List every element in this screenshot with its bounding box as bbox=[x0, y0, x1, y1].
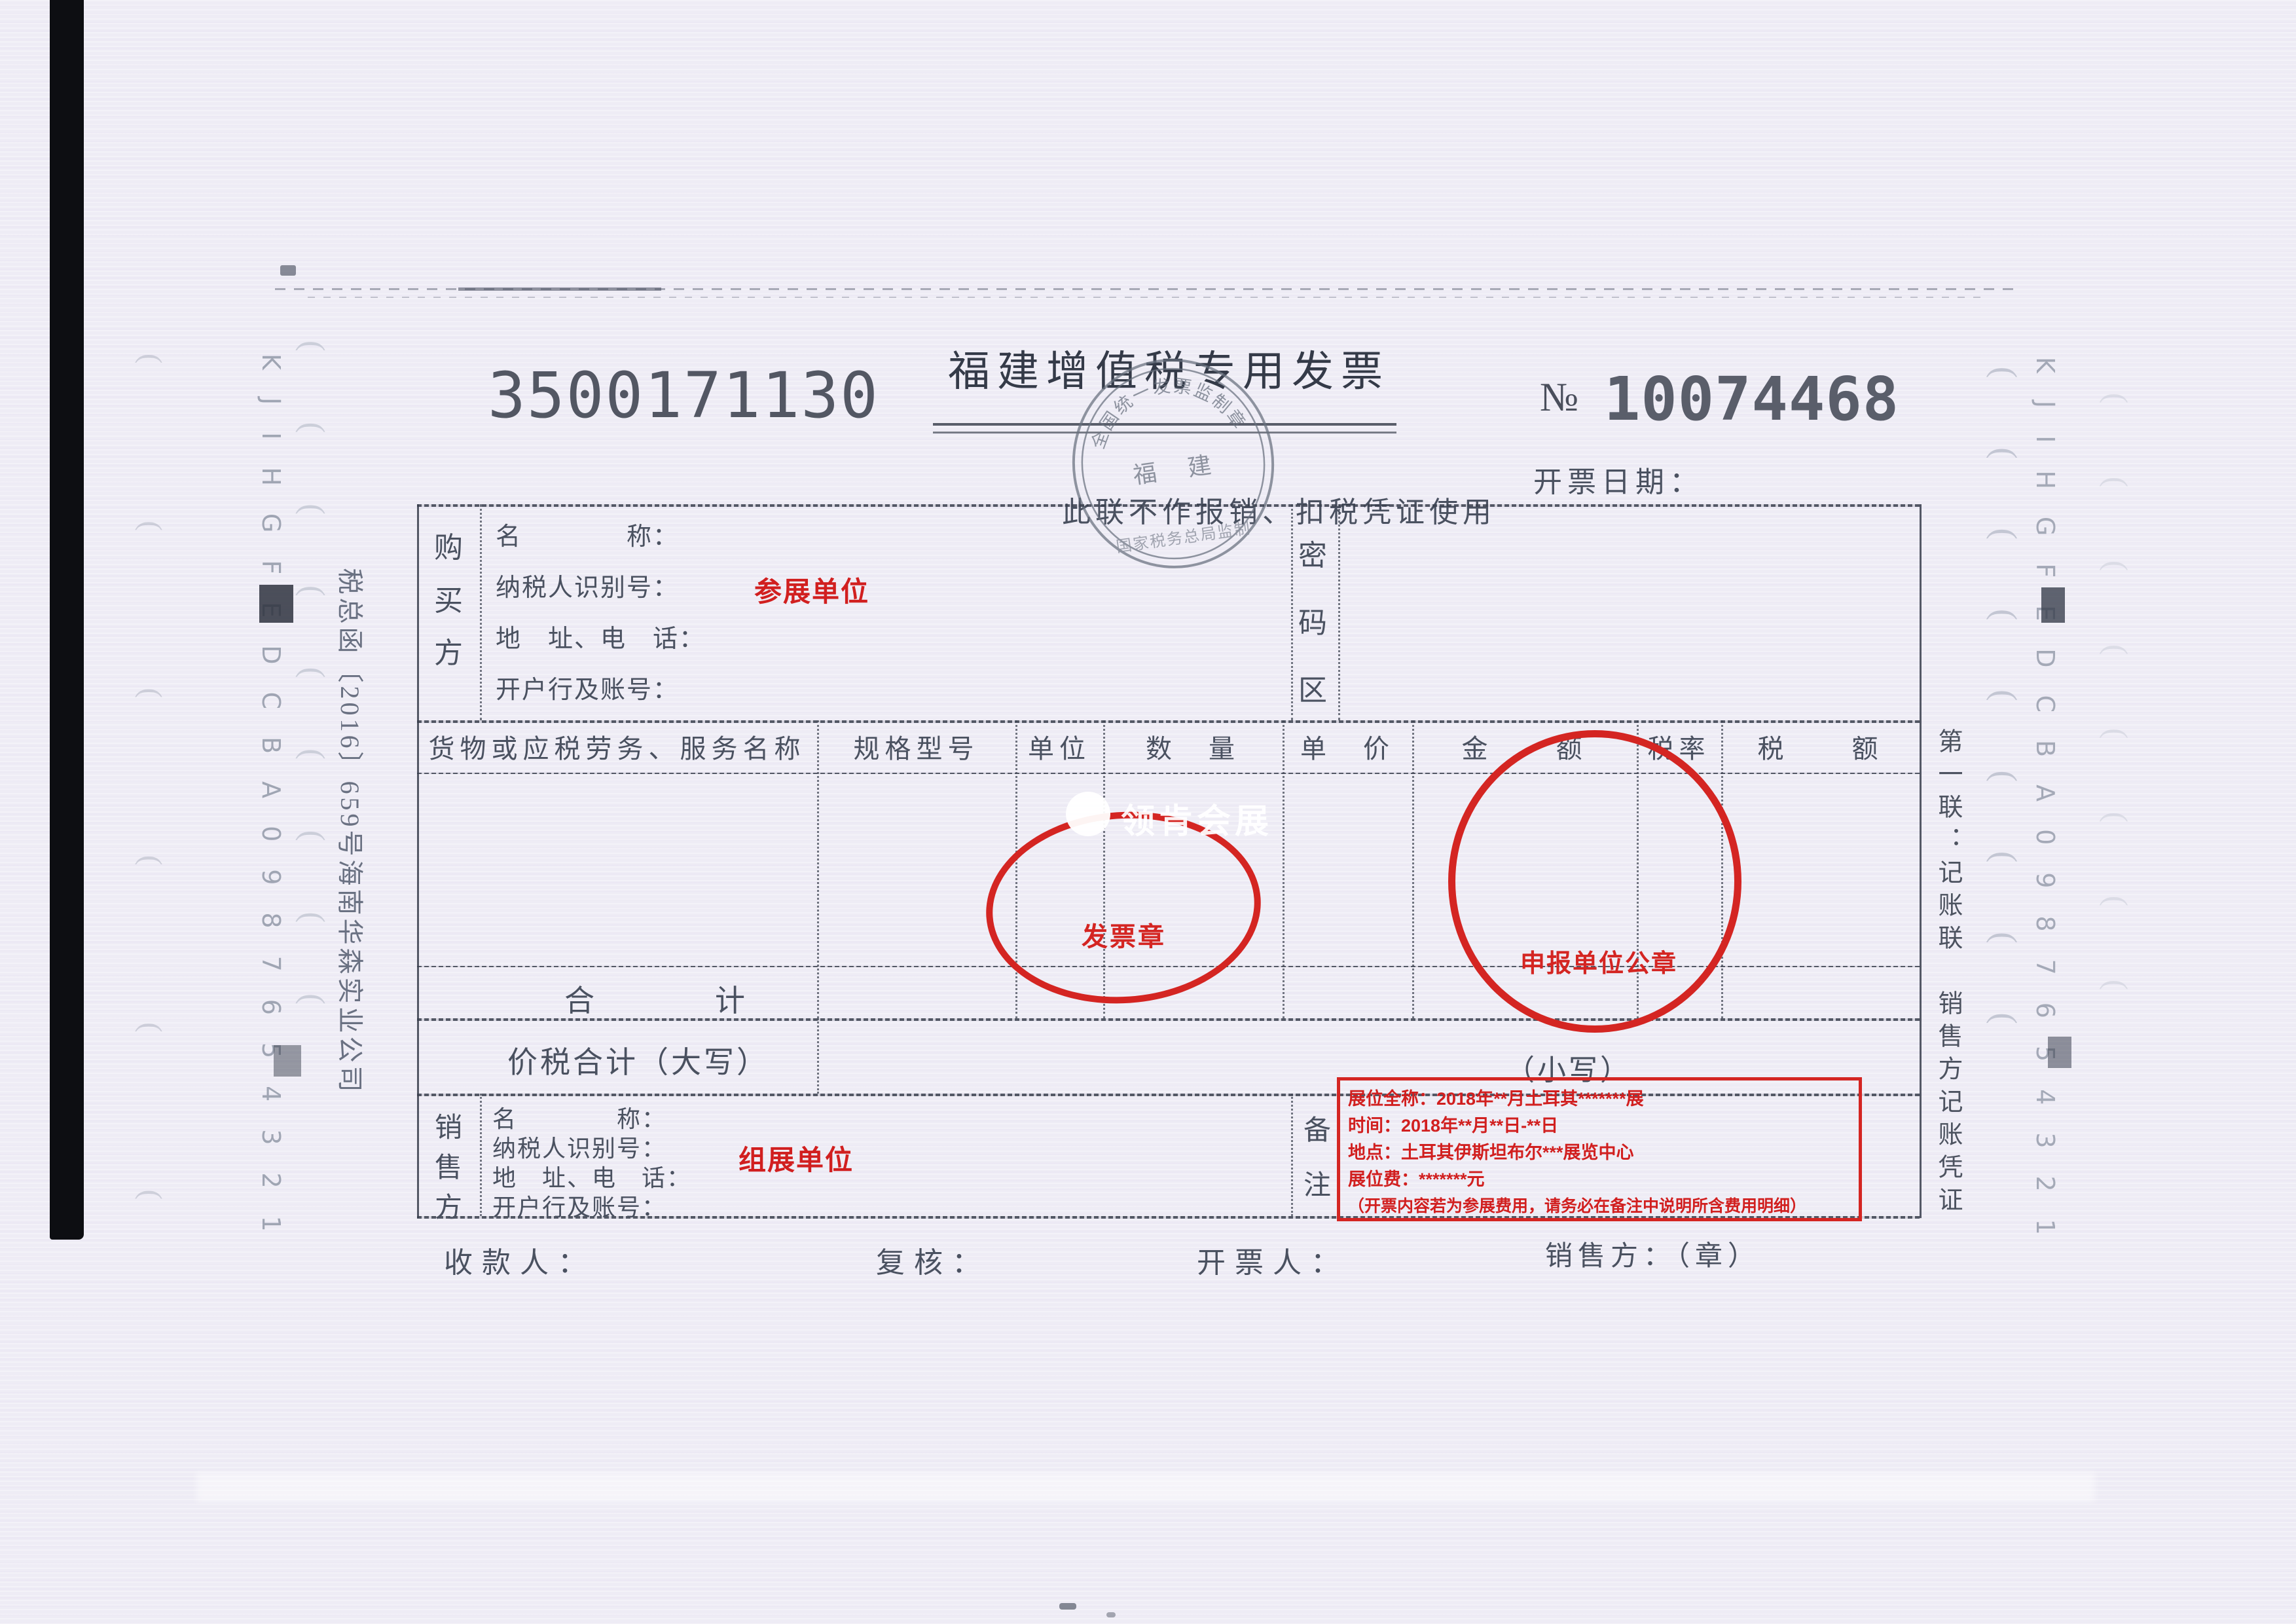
left-scale-blob-2 bbox=[274, 1045, 301, 1077]
invoice-scan-page: (((((( KJIHGFEDCBA0987654321 ((((((((( K… bbox=[0, 0, 2296, 1624]
scan-black-bar bbox=[50, 0, 84, 1240]
declaration-seal-circle bbox=[1448, 730, 1741, 1033]
table-border-left bbox=[417, 504, 419, 1218]
watermark-text: 领肯会展 bbox=[1121, 794, 1273, 843]
buyer-party-char: 方 bbox=[434, 629, 463, 671]
seller-bank-field: 开户行及账号： bbox=[492, 1189, 666, 1223]
scan-speck-1 bbox=[1059, 1603, 1076, 1610]
password-label-char: 码 bbox=[1298, 599, 1327, 641]
right-edge-scale: KJIHGFEDCBA0987654321 bbox=[2031, 357, 2060, 1274]
buyer-taxid-field: 纳税人识别号： bbox=[496, 567, 679, 603]
footer-seller-seal-label: 销售方：（章） bbox=[1545, 1234, 1760, 1274]
right-scale-blob-2 bbox=[2048, 1037, 2071, 1068]
remarks-label-char: 注 bbox=[1303, 1163, 1331, 1203]
buyer-name-field: 名 称： bbox=[496, 516, 679, 552]
col-header-goods: 货物或应税劳务、服务名称 bbox=[417, 724, 817, 769]
table-border-right bbox=[1920, 504, 1922, 1218]
buyer-address-field: 地 址、电 话： bbox=[496, 618, 705, 654]
line-buyer-bottom bbox=[417, 720, 1922, 723]
scan-mark-top-left bbox=[280, 265, 296, 276]
remarks-label-char: 备 bbox=[1303, 1108, 1331, 1148]
right-scale-blob-1 bbox=[2041, 587, 2065, 623]
col-header-taxamount: 税 额 bbox=[1721, 724, 1920, 769]
stamp-center-text: 福 建 bbox=[1131, 451, 1216, 489]
svg-text:全国统一发票监制章: 全国统一发票监制章 bbox=[1080, 366, 1252, 454]
left-regulation-note: 税总函〔2016〕659号海南华森实业公司 bbox=[340, 530, 371, 1133]
tax-total-label: 价税合计（大写） bbox=[507, 1039, 769, 1082]
buyer-party-label: 购 买 方 bbox=[432, 524, 465, 671]
password-label-char: 区 bbox=[1298, 667, 1327, 709]
stamp-top-arc-text: 全国统一发票监制章 bbox=[1080, 366, 1252, 454]
declaration-seal-label: 申报单位公章 bbox=[1520, 943, 1677, 979]
seller-party-char: 方 bbox=[435, 1185, 462, 1225]
col-header-price: 单 价 bbox=[1283, 724, 1412, 769]
col-header-spec: 规格型号 bbox=[817, 724, 1015, 769]
buyer-party-char: 买 bbox=[434, 577, 463, 619]
remark-note: （开票内容若为参展费用，请务必在备注中说明所含费用明细） bbox=[1348, 1193, 1851, 1220]
invoice-code: 3500171130 bbox=[488, 359, 879, 432]
divider-buyer-fields bbox=[1291, 504, 1293, 720]
scan-speck-2 bbox=[1106, 1612, 1116, 1617]
remark-location: 地点：土耳其伊斯坦布尔***展览中心 bbox=[1348, 1139, 1851, 1166]
divider-taxtotal bbox=[817, 1018, 819, 1094]
remark-fee: 展位费：*******元 bbox=[1348, 1166, 1851, 1193]
scan-streak-top-dark bbox=[458, 287, 661, 291]
invoice-seal-label: 发票章 bbox=[1082, 915, 1166, 953]
divider-password-col bbox=[1338, 504, 1340, 720]
footer-drawer-label: 开票人： bbox=[1197, 1239, 1349, 1281]
col-header-unit: 单位 bbox=[1015, 724, 1103, 769]
remarks-box: 展位全称：2018年**月土耳其*******展 时间：2018年**月**日-… bbox=[1337, 1077, 1862, 1221]
seller-annotation-organizer: 组展单位 bbox=[738, 1138, 854, 1178]
right-edge-arcs-outer: (((((((( bbox=[2098, 393, 2134, 1244]
table-border-top bbox=[417, 504, 1922, 507]
left-scale-blob-1 bbox=[259, 585, 293, 623]
buyer-bank-field: 开户行及账号： bbox=[496, 669, 679, 705]
left-edge-scale: KJIHGFEDCBA0987654321 bbox=[257, 354, 285, 1270]
left-edge-arcs: ((((((((( bbox=[295, 341, 333, 1257]
seller-party-char: 销 bbox=[435, 1105, 462, 1145]
total-row-label: 合 计 bbox=[564, 977, 745, 1020]
invoice-number: 10074468 bbox=[1604, 364, 1899, 434]
footer-reviewer-label: 复核： bbox=[876, 1239, 990, 1281]
remark-booth-name: 展位全称：2018年**月土耳其*******展 bbox=[1348, 1086, 1851, 1113]
buyer-annotation-exhibitor: 参展单位 bbox=[754, 570, 869, 610]
remarks-label: 备 注 bbox=[1303, 1108, 1332, 1203]
left-margin-arcs: (((((( bbox=[134, 354, 169, 1244]
seller-party-label: 销 售 方 bbox=[433, 1105, 464, 1209]
password-area-label: 密 码 区 bbox=[1298, 532, 1328, 709]
divider-buyer-party bbox=[480, 504, 482, 720]
right-edge-arcs-inner: ((((((((( bbox=[1985, 367, 2024, 1283]
footer-payee-label: 收款人： bbox=[444, 1239, 596, 1281]
invoice-number-prefix: № bbox=[1540, 375, 1578, 421]
seller-party-char: 售 bbox=[435, 1145, 462, 1185]
scan-light-band bbox=[196, 1472, 2095, 1502]
tax-supervision-stamp: 全国统一发票监制章 福 建 国家税务总局监制 bbox=[1042, 339, 1304, 588]
password-label-char: 密 bbox=[1298, 532, 1327, 574]
remark-time: 时间：2018年**月**日-**日 bbox=[1348, 1113, 1851, 1139]
scan-streak-top-2 bbox=[308, 297, 1984, 298]
watermark-logo-circle bbox=[1066, 792, 1110, 836]
divider-seller-party bbox=[480, 1094, 482, 1216]
stamp-bottom-arc-text: 国家税务总局监制 bbox=[1115, 520, 1252, 557]
invoice-date-label: 开票日期： bbox=[1533, 458, 1704, 500]
col-header-qty: 数 量 bbox=[1103, 724, 1283, 769]
right-copy-label: 第一联：记账联 销售方记账凭证 bbox=[1930, 728, 1966, 1252]
buyer-party-char: 购 bbox=[434, 524, 463, 566]
divider-seller-fields bbox=[1291, 1094, 1293, 1216]
